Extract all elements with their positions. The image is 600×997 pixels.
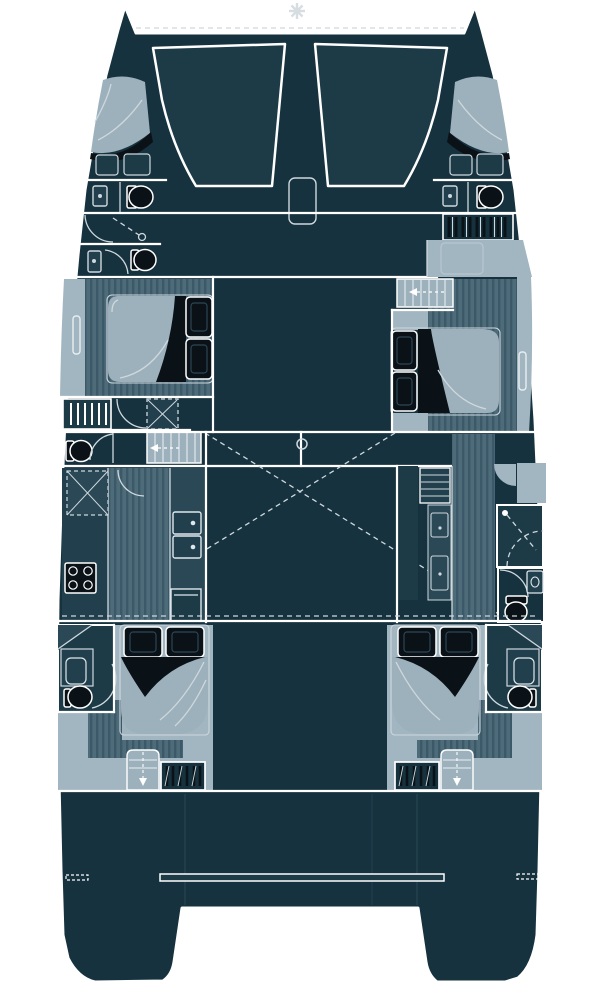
companionway-stairs-port: [147, 432, 201, 463]
hanging-locker: [63, 399, 111, 429]
windlass-icon: [289, 3, 305, 19]
catamaran-floor-plan: [0, 0, 600, 997]
cabin-floor-light: [392, 413, 428, 432]
hanging-locker-starboard: [395, 762, 439, 790]
pillow: [450, 155, 472, 175]
pillow: [124, 154, 150, 175]
shelf-unit: [420, 468, 450, 503]
pillow: [477, 154, 503, 175]
double-bed-starboard: [391, 328, 500, 415]
stove-icon: [65, 563, 96, 593]
corridor-floor: [452, 434, 495, 622]
double-bed-aft-starboard: [391, 625, 480, 735]
galley-floor: [108, 468, 170, 622]
floor-plan-canvas: [0, 0, 600, 997]
shower-room: [497, 505, 543, 567]
cabinet-doors: [428, 505, 451, 600]
mid-cabin-starboard: [391, 277, 532, 433]
landing: [392, 310, 428, 330]
double-bed-port: [107, 295, 213, 383]
oven-icon: [171, 589, 201, 621]
side-deck-step: [517, 463, 546, 503]
day-head: [498, 568, 544, 622]
toilet-icon: [477, 186, 503, 208]
hanging-locker-port: [161, 762, 205, 790]
toilet-icon: [131, 250, 156, 271]
stairs-down-port: [127, 750, 159, 790]
stairs-down-starboard: [441, 750, 473, 790]
aft-bathroom-port: [58, 625, 116, 712]
toilet-icon: [127, 186, 153, 208]
aft-bathroom-starboard: [484, 625, 542, 712]
toilet-icon: [64, 686, 92, 708]
anchor-locker-hatch: [289, 178, 316, 224]
shower-pan: [147, 399, 178, 429]
sink-icon: [527, 571, 543, 593]
toilet-icon: [70, 441, 92, 462]
pillow: [96, 155, 118, 175]
aft-bench-bar: [160, 874, 444, 881]
companionway-stairs-starboard: [397, 279, 453, 307]
louvered-locker: [443, 214, 513, 240]
storage-x-cabinet: [67, 471, 108, 515]
toilet-icon: [505, 596, 527, 622]
foredeck-seat-starboard: [427, 240, 532, 277]
toilet-icon: [508, 686, 536, 708]
cabinet-column: [397, 466, 418, 600]
